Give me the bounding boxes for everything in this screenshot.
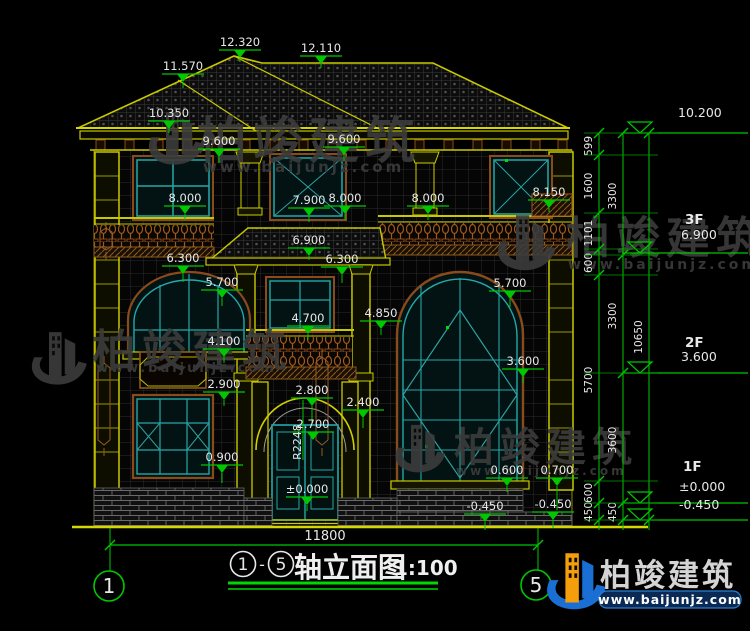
brand-logo-icon bbox=[547, 553, 606, 609]
dim-value: 1101 bbox=[583, 220, 595, 247]
elevation-value: 12.320 bbox=[220, 35, 260, 49]
storey-elevation: 10.200 bbox=[678, 105, 722, 120]
level-triangle-icon bbox=[628, 122, 652, 133]
dim-value: 3600 bbox=[607, 427, 619, 454]
elevation-value: -0.450 bbox=[466, 499, 503, 513]
brand-logo-url: www.baijunjz.com bbox=[598, 592, 742, 607]
watermark-logo-icon bbox=[32, 332, 87, 385]
elevation-value: 8.000 bbox=[412, 191, 445, 205]
elevation-value: 8.000 bbox=[169, 191, 202, 205]
brand-logo: 柏竣建筑 www.baijunjz.com bbox=[547, 553, 742, 609]
overall-dim-value: 11800 bbox=[304, 529, 345, 544]
level-triangle-icon bbox=[628, 492, 652, 503]
drawing-title: 1 - 5 轴立面图 1:100 bbox=[228, 551, 458, 589]
elevation-value: 0.700 bbox=[541, 463, 574, 477]
brand-logo-text: 柏竣建筑 bbox=[600, 558, 736, 594]
cad-canvas: { "drawing": { "title": { "axis_start": … bbox=[0, 0, 750, 627]
elevation-value: 6.900 bbox=[293, 233, 326, 247]
elevation-value: 11.570 bbox=[163, 59, 203, 73]
storey-elevation: 6.900 bbox=[681, 227, 717, 242]
storey-elevation: -0.450 bbox=[679, 497, 719, 512]
elevation-value: 9.600 bbox=[203, 134, 236, 148]
elevation-value: 10.350 bbox=[149, 106, 189, 120]
elevation-drawing: 柏竣建筑www.baijunjz.com柏竣建筑www.baijunjz.com… bbox=[0, 0, 750, 627]
elevation-mark: 12.320 bbox=[219, 35, 261, 62]
storey-elevation: 3.600 bbox=[681, 349, 717, 364]
storey-level: -0.450 bbox=[622, 497, 748, 520]
elevation-value: 2.900 bbox=[208, 377, 241, 391]
storey-elevation: ±0.000 bbox=[679, 479, 725, 494]
watermark: 柏竣建筑www.baijunjz.com bbox=[32, 326, 292, 385]
radius-label: R2248 bbox=[291, 424, 304, 460]
title-axis-end: 5 bbox=[276, 555, 287, 575]
dim-value: 600 bbox=[583, 483, 595, 503]
axis-number: 5 bbox=[530, 573, 543, 597]
title-scale: 1:100 bbox=[394, 556, 458, 580]
elevation-value: 5.700 bbox=[494, 276, 527, 290]
elevation-value: 6.300 bbox=[167, 251, 200, 265]
elevation-value: 4.100 bbox=[208, 334, 241, 348]
elevation-value: 3.600 bbox=[507, 354, 540, 368]
elevation-value: 5.700 bbox=[206, 275, 239, 289]
elevation-value: 12.110 bbox=[301, 41, 341, 55]
elevation-value: 9.600 bbox=[328, 132, 361, 146]
watermark-url: www.baijunjz.com bbox=[96, 361, 277, 376]
dim-value: 10650 bbox=[633, 320, 645, 353]
elevation-value: 4.700 bbox=[292, 311, 325, 325]
elevation-value: 6.300 bbox=[326, 252, 359, 266]
elevation-value: 0.900 bbox=[206, 450, 239, 464]
title-dash: - bbox=[259, 555, 265, 574]
storey-label: 3F bbox=[685, 212, 704, 228]
watermark-url: www.baijunjz.com bbox=[203, 158, 404, 176]
watermark-url: www.baijunjz.com bbox=[568, 257, 750, 273]
storey-label: 1F bbox=[683, 459, 702, 475]
elevation-value: 4.850 bbox=[365, 306, 398, 320]
elevation-value: 2.800 bbox=[296, 383, 329, 397]
title-axis-start: 1 bbox=[238, 555, 249, 575]
level-triangle-icon bbox=[628, 509, 652, 520]
dim-value: 450 bbox=[583, 502, 595, 522]
axis-bubble: 1 bbox=[94, 528, 124, 601]
dim-value: 1600 bbox=[583, 173, 595, 200]
title-text: 轴立面图 bbox=[294, 551, 406, 584]
dim-value: 600 bbox=[583, 253, 595, 273]
dim-value: 5700 bbox=[583, 367, 595, 394]
elevation-value: 8.000 bbox=[329, 191, 362, 205]
dim-value: 450 bbox=[607, 502, 619, 522]
elevation-value: 7.900 bbox=[293, 193, 326, 207]
dim-value: 3300 bbox=[607, 303, 619, 330]
elevation-value: 2.400 bbox=[347, 395, 380, 409]
elevation-value: 8.150 bbox=[533, 185, 566, 199]
elevation-value: -0.450 bbox=[534, 497, 571, 511]
axis-number: 1 bbox=[103, 574, 116, 598]
elevation-value: 0.600 bbox=[491, 463, 524, 477]
dim-value: 599 bbox=[583, 136, 595, 156]
dim-value: 3300 bbox=[607, 183, 619, 210]
axis-bubble: 5 bbox=[521, 528, 551, 600]
level-triangle-icon bbox=[628, 362, 652, 373]
elevation-value: ±0.000 bbox=[286, 482, 329, 496]
storey-level: 10.200 bbox=[622, 105, 748, 133]
